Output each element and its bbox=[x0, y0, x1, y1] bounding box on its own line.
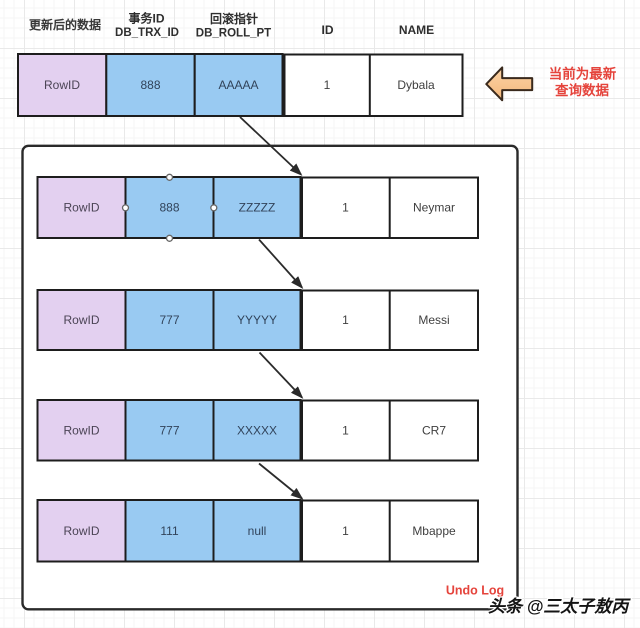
svg-text:更新后的数据: 更新后的数据 bbox=[29, 17, 101, 32]
svg-text:CR7: CR7 bbox=[422, 424, 446, 438]
svg-text:Neymar: Neymar bbox=[413, 201, 455, 215]
svg-text:Mbappe: Mbappe bbox=[412, 524, 456, 538]
svg-text:1: 1 bbox=[342, 524, 349, 538]
svg-text:NAME: NAME bbox=[399, 23, 434, 37]
svg-text:查询数据: 查询数据 bbox=[555, 82, 609, 98]
svg-text:事务ID: 事务ID bbox=[128, 11, 164, 26]
svg-text:头条 @三太子敖丙: 头条 @三太子敖丙 bbox=[488, 597, 631, 616]
svg-text:RowID: RowID bbox=[63, 524, 99, 538]
svg-text:888: 888 bbox=[140, 78, 160, 92]
svg-text:DB_TRX_ID: DB_TRX_ID bbox=[115, 27, 179, 39]
svg-text:888: 888 bbox=[159, 201, 179, 215]
svg-text:RowID: RowID bbox=[63, 201, 99, 215]
svg-text:YYYYY: YYYYY bbox=[237, 313, 277, 327]
svg-text:1: 1 bbox=[324, 78, 331, 92]
svg-text:AAAAA: AAAAA bbox=[218, 78, 258, 92]
svg-text:Undo Log: Undo Log bbox=[446, 584, 504, 598]
svg-text:RowID: RowID bbox=[63, 424, 99, 438]
svg-text:Dybala: Dybala bbox=[397, 78, 435, 92]
svg-text:ZZZZZ: ZZZZZ bbox=[239, 201, 276, 215]
svg-text:null: null bbox=[248, 524, 267, 538]
svg-text:当前为最新: 当前为最新 bbox=[549, 65, 617, 81]
svg-text:777: 777 bbox=[159, 313, 179, 327]
svg-text:ID: ID bbox=[322, 23, 334, 37]
svg-text:XXXXX: XXXXX bbox=[237, 424, 277, 438]
svg-text:1: 1 bbox=[342, 424, 349, 438]
svg-text:111: 111 bbox=[160, 524, 179, 538]
svg-text:1: 1 bbox=[342, 201, 349, 215]
svg-text:777: 777 bbox=[159, 424, 179, 438]
svg-text:DB_ROLL_PT: DB_ROLL_PT bbox=[196, 27, 271, 39]
svg-text:回滚指针: 回滚指针 bbox=[210, 11, 258, 26]
svg-text:RowID: RowID bbox=[63, 313, 99, 327]
svg-text:RowID: RowID bbox=[44, 78, 80, 92]
svg-text:Messi: Messi bbox=[418, 313, 449, 327]
svg-text:1: 1 bbox=[342, 313, 349, 327]
